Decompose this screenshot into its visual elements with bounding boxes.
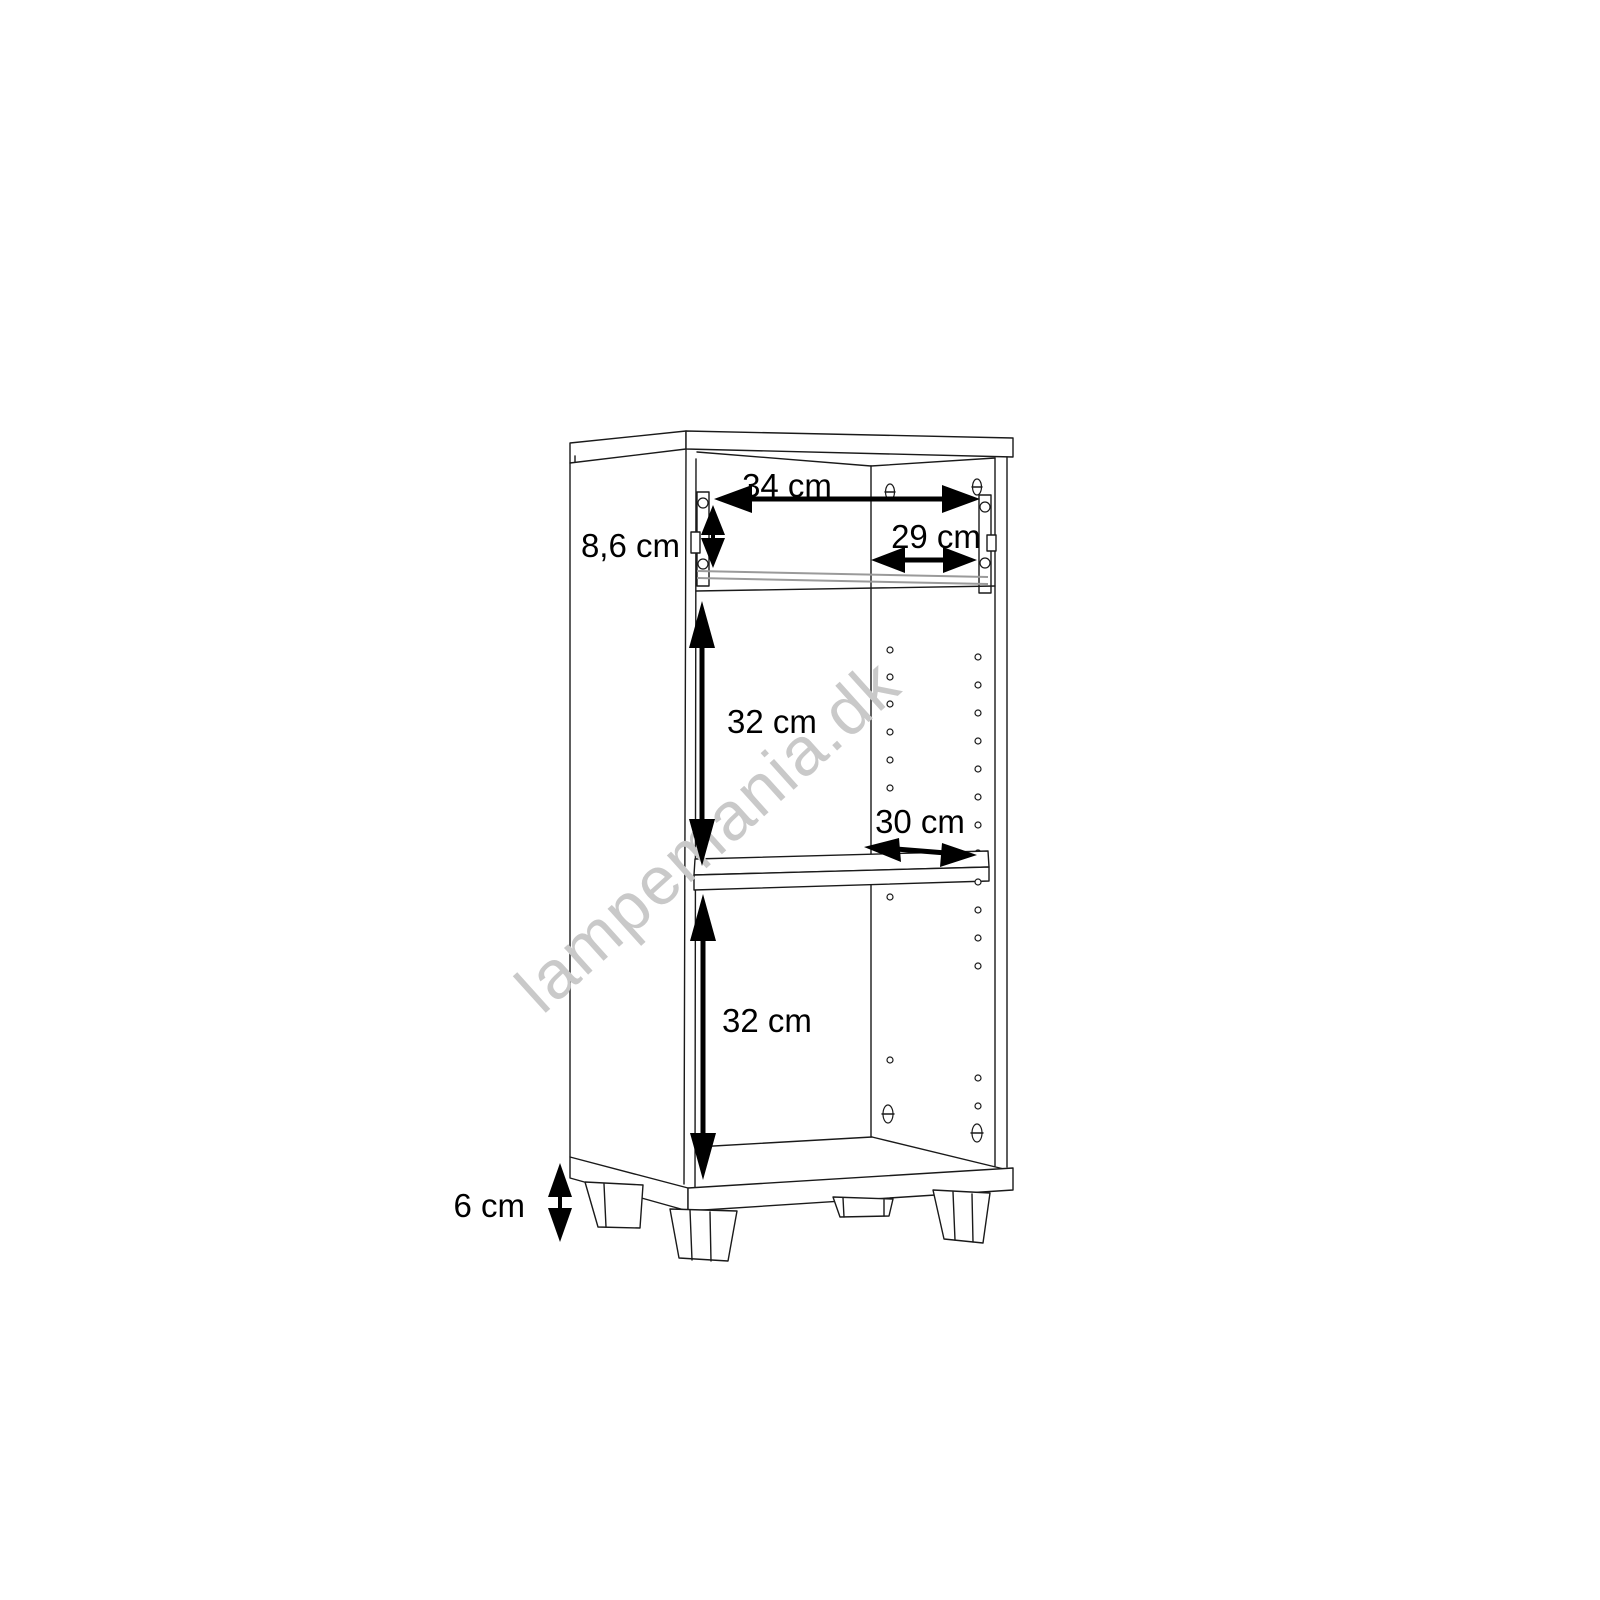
bottom-board-floor <box>696 1137 1008 1170</box>
dim-label-30cm: 30 cm <box>875 803 965 840</box>
right-side-panel <box>995 457 1007 1167</box>
foot-back-middle <box>833 1197 893 1217</box>
dim-label-8-6cm: 8,6 cm <box>581 527 680 564</box>
shelf-pin-holes-lower <box>887 879 981 1109</box>
dim-label-34cm: 34 cm <box>742 467 832 504</box>
dim-label-29cm: 29 cm <box>891 518 981 555</box>
dim-label-32cm-upper: 32 cm <box>727 703 817 740</box>
dim-arrow-32cm-upper <box>689 601 715 866</box>
dim-arrow-6cm <box>548 1163 572 1242</box>
dim-arrow-32cm-lower <box>690 894 716 1180</box>
cabinet-dimension-diagram: lampemania.dk <box>0 0 1600 1600</box>
drawer-rail-right <box>979 495 996 593</box>
foot-front-left <box>670 1209 737 1261</box>
foot-front-right <box>933 1190 990 1243</box>
foot-back-left <box>585 1182 643 1228</box>
cam-keyholes-bottom <box>882 1105 983 1142</box>
dim-label-6cm: 6 cm <box>453 1187 525 1224</box>
cabinet-top-panel <box>570 431 1013 463</box>
diagram-canvas: lampemania.dk <box>0 0 1600 1600</box>
drawer-bottom-bar <box>696 571 995 591</box>
dim-label-32cm-lower: 32 cm <box>722 1002 812 1039</box>
